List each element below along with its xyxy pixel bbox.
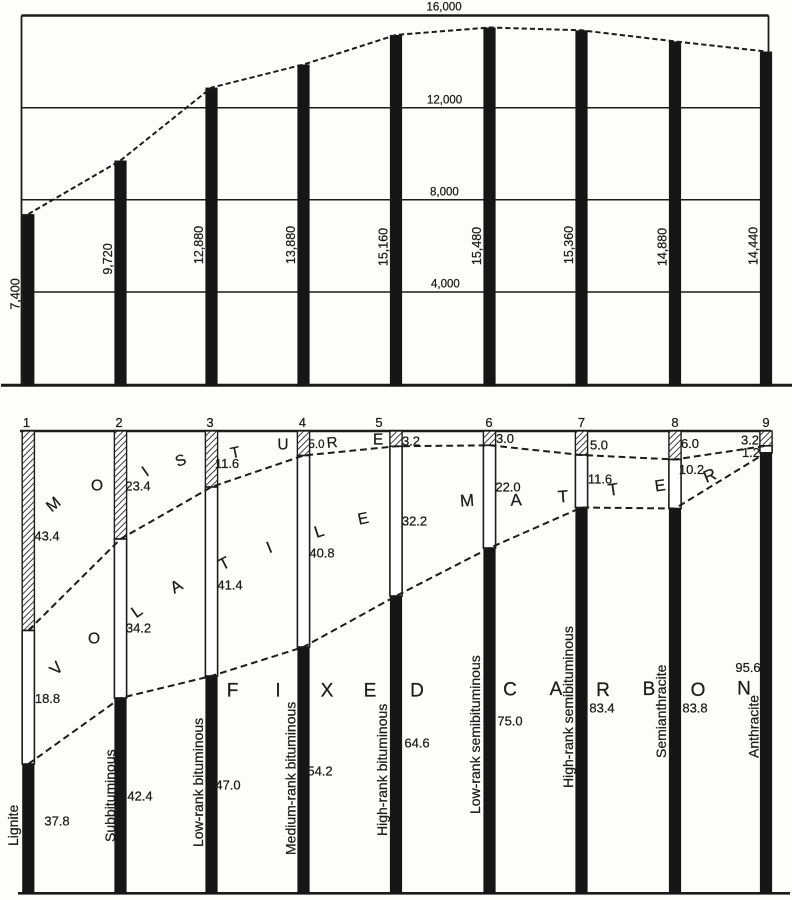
svg-text:O: O bbox=[88, 631, 100, 648]
svg-text:2: 2 bbox=[115, 415, 122, 430]
svg-text:5: 5 bbox=[375, 415, 382, 430]
svg-text:4,000: 4,000 bbox=[431, 279, 460, 291]
svg-text:Lignite: Lignite bbox=[5, 805, 21, 846]
svg-text:8: 8 bbox=[671, 415, 678, 430]
svg-text:9: 9 bbox=[762, 415, 769, 430]
svg-text:22.0: 22.0 bbox=[495, 479, 520, 494]
svg-text:42.4: 42.4 bbox=[127, 788, 152, 803]
svg-text:3.2: 3.2 bbox=[402, 433, 420, 448]
svg-text:I: I bbox=[275, 680, 280, 701]
svg-text:32.2: 32.2 bbox=[402, 513, 427, 528]
svg-text:O: O bbox=[91, 478, 103, 495]
svg-text:11.6: 11.6 bbox=[215, 456, 239, 471]
svg-text:15,160: 15,160 bbox=[376, 228, 390, 266]
svg-text:37.8: 37.8 bbox=[44, 813, 69, 828]
svg-text:34.2: 34.2 bbox=[126, 620, 151, 635]
svg-text:8,000: 8,000 bbox=[430, 187, 459, 199]
svg-text:16,000: 16,000 bbox=[427, 2, 462, 14]
svg-text:Subbituminous: Subbituminous bbox=[102, 749, 118, 842]
svg-text:40.8: 40.8 bbox=[309, 545, 334, 560]
svg-text:5.0: 5.0 bbox=[309, 439, 325, 451]
svg-text:5.0: 5.0 bbox=[590, 437, 608, 452]
svg-text:M: M bbox=[459, 491, 474, 511]
svg-text:3: 3 bbox=[206, 415, 213, 430]
svg-text:12,000: 12,000 bbox=[427, 95, 462, 107]
svg-text:43.4: 43.4 bbox=[34, 528, 59, 543]
svg-text:R: R bbox=[326, 434, 338, 452]
svg-text:83.8: 83.8 bbox=[682, 700, 707, 715]
svg-text:High-rank semibituminous: High-rank semibituminous bbox=[560, 626, 576, 788]
svg-text:7: 7 bbox=[578, 415, 585, 430]
svg-text:R: R bbox=[596, 680, 610, 701]
svg-text:4: 4 bbox=[299, 415, 306, 430]
svg-text:6.0: 6.0 bbox=[681, 436, 699, 451]
svg-text:U: U bbox=[277, 437, 288, 454]
svg-text:15,360: 15,360 bbox=[562, 226, 576, 264]
svg-text:11.6: 11.6 bbox=[588, 471, 612, 486]
svg-text:12,880: 12,880 bbox=[192, 226, 206, 264]
svg-text:14,440: 14,440 bbox=[746, 227, 760, 265]
svg-text:Medium-rank bituminous: Medium-rank bituminous bbox=[283, 702, 299, 855]
svg-text:E: E bbox=[364, 680, 377, 701]
svg-text:O: O bbox=[691, 680, 706, 701]
svg-text:X: X bbox=[321, 680, 334, 701]
svg-text:Low-rank bituminous: Low-rank bituminous bbox=[190, 718, 206, 847]
svg-text:14,880: 14,880 bbox=[655, 228, 669, 266]
svg-text:3.0: 3.0 bbox=[496, 431, 514, 446]
svg-text:E: E bbox=[373, 432, 383, 449]
svg-text:10.2: 10.2 bbox=[679, 462, 704, 477]
svg-text:13,880: 13,880 bbox=[284, 226, 298, 264]
svg-text:54.2: 54.2 bbox=[307, 763, 332, 778]
svg-text:Low-rank semibituminous: Low-rank semibituminous bbox=[467, 655, 483, 814]
svg-text:75.0: 75.0 bbox=[497, 713, 522, 728]
svg-text:F: F bbox=[227, 680, 239, 701]
svg-text:C: C bbox=[503, 679, 517, 700]
svg-text:D: D bbox=[410, 680, 424, 701]
svg-text:41.4: 41.4 bbox=[217, 577, 242, 592]
svg-text:7,400: 7,400 bbox=[9, 278, 23, 309]
svg-text:6: 6 bbox=[485, 415, 492, 430]
svg-text:1.2: 1.2 bbox=[742, 445, 760, 460]
svg-text:9,720: 9,720 bbox=[101, 243, 115, 274]
svg-text:T: T bbox=[557, 487, 569, 507]
svg-text:18.8: 18.8 bbox=[35, 691, 60, 706]
svg-text:23.4: 23.4 bbox=[125, 478, 150, 493]
svg-text:64.6: 64.6 bbox=[404, 735, 429, 750]
svg-text:Anthracite: Anthracite bbox=[746, 695, 762, 758]
svg-text:Semianthracite: Semianthracite bbox=[653, 664, 669, 758]
svg-text:47.0: 47.0 bbox=[215, 777, 240, 792]
svg-text:15,480: 15,480 bbox=[470, 227, 484, 265]
svg-text:95.6: 95.6 bbox=[735, 660, 760, 675]
svg-text:High-rank bituminous: High-rank bituminous bbox=[374, 704, 390, 836]
svg-text:1: 1 bbox=[23, 415, 30, 430]
svg-text:83.4: 83.4 bbox=[589, 700, 614, 715]
